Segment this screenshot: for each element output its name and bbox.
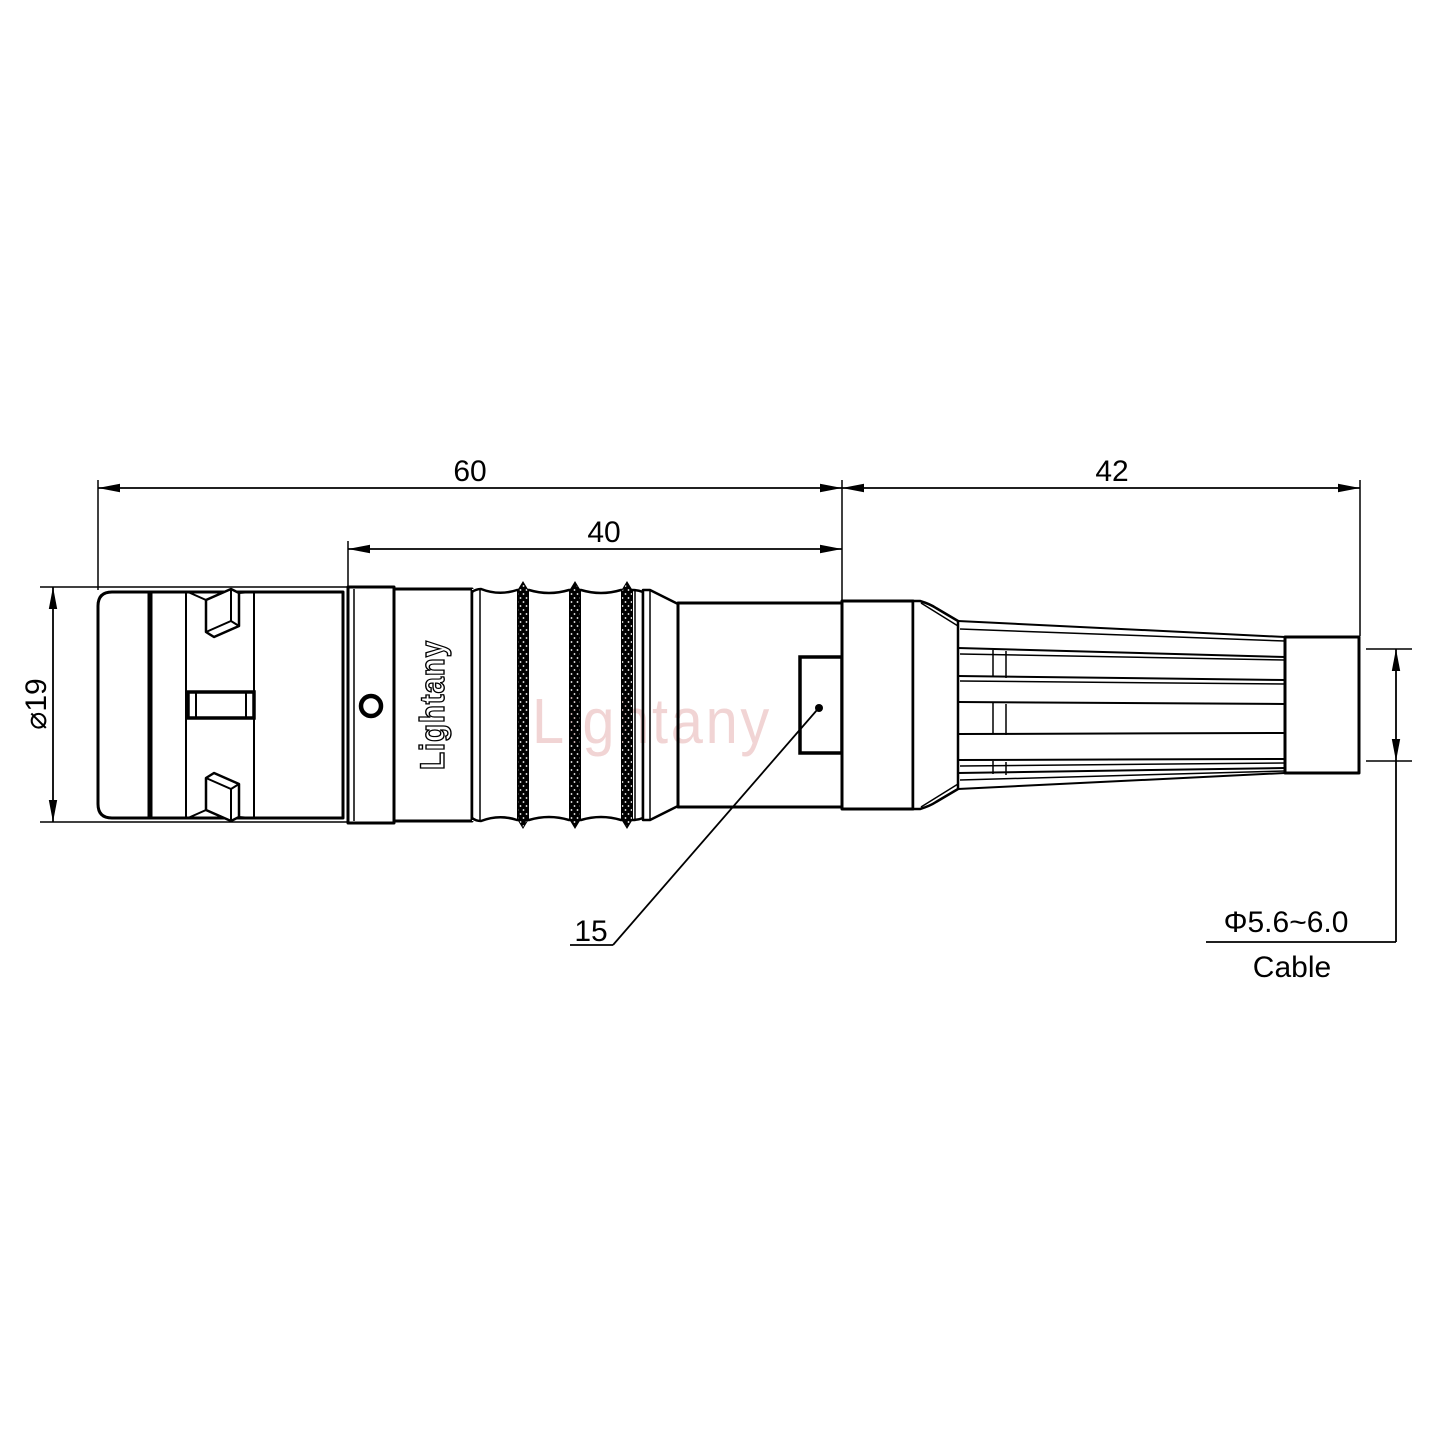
key-slot [188, 692, 254, 718]
leader-dot [815, 704, 823, 712]
body-diameter-label: ⌀19 [20, 678, 53, 729]
collar [348, 587, 394, 823]
boot-fin1-bottom [958, 648, 1285, 657]
latch-bottom-notch-right [239, 817, 251, 818]
boot-length-label: 42 [1095, 455, 1128, 488]
arrow-left-icon [348, 545, 370, 553]
dimension-total-length: 60 [98, 455, 842, 601]
mid-length-label: 40 [587, 516, 620, 549]
boot-fin3-bottom [958, 759, 1285, 760]
arrow-left-icon [842, 484, 864, 492]
arrow-up-icon [1392, 649, 1400, 671]
brand-engraving: Lightany [414, 640, 452, 770]
boot-slot-webs [993, 650, 1006, 775]
arrow-down-icon [1392, 739, 1400, 761]
connector-technical-drawing: ⌀19 60 40 42 [0, 0, 1440, 1440]
collar-hole [361, 696, 381, 716]
rear-feature-label: 15 [574, 915, 607, 948]
arrow-down-icon [49, 800, 57, 822]
latch-top-notch-right [239, 592, 251, 593]
boot-fin2-bottom [958, 702, 1285, 704]
arrow-right-icon [1338, 484, 1360, 492]
boot-cone [913, 601, 958, 809]
end-cap [842, 601, 913, 809]
boot-fin2-echo [960, 681, 1285, 684]
cable-label: Cable [1253, 951, 1331, 984]
knurl-strip-1 [518, 582, 529, 828]
arrow-right-icon [820, 545, 842, 553]
strain-relief-boot [958, 621, 1285, 789]
arrow-up-icon [49, 587, 57, 609]
cable-ferrule [1285, 637, 1359, 773]
arrow-right-icon [820, 484, 842, 492]
arrow-left-icon [98, 484, 120, 492]
key-slot-outline [188, 692, 254, 718]
dimension-mid-length: 40 [348, 516, 842, 586]
cable-diameter-label: Φ5.6~6.0 [1224, 906, 1349, 939]
mid-barrel: Lightany [394, 589, 472, 821]
boot-fin4-echo [960, 763, 1285, 766]
total-length-label: 60 [453, 455, 486, 488]
technical-drawing-page: ⌀19 60 40 42 [0, 0, 1440, 1440]
boot-fin2-top [958, 676, 1285, 680]
watermark-text: Lightany [532, 685, 772, 757]
boot-fin3-top [958, 733, 1285, 734]
